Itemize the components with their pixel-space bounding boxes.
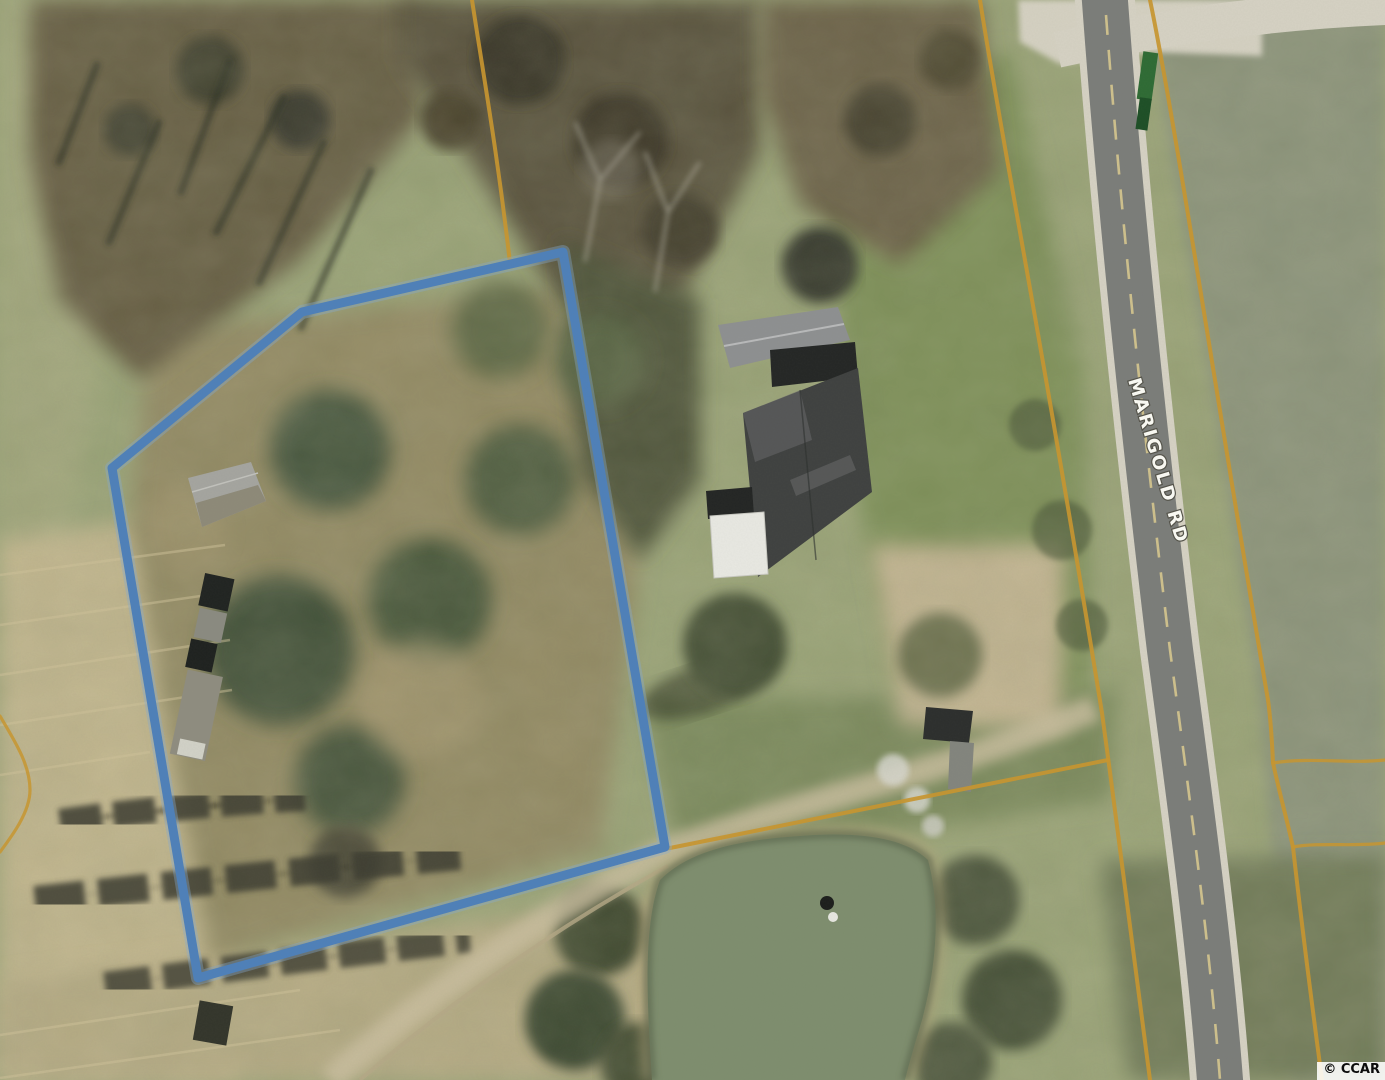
aerial-map-canvas: MARIGOLD RD xyxy=(0,0,1385,1080)
texture-grain xyxy=(0,0,1385,1080)
aerial-parcel-photo: MARIGOLD RD © CCAR xyxy=(0,0,1385,1080)
copyright-watermark: © CCAR xyxy=(1317,1062,1385,1080)
